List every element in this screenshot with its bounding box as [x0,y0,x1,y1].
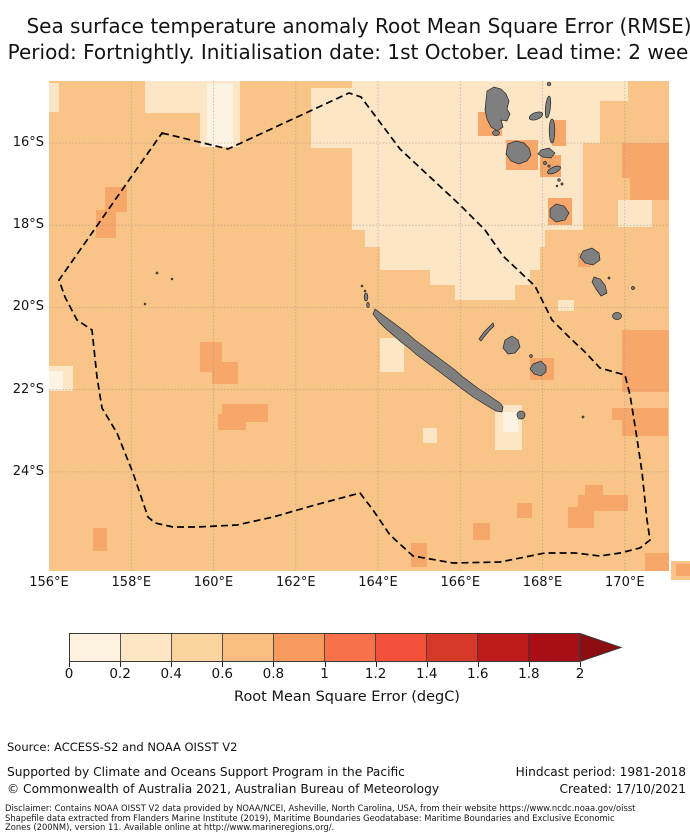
copyright-text: © Commonwealth of Australia 2021, Austra… [7,782,439,796]
disclaimer-line-1: Disclaimer: Contains NOAA OISST V2 data … [5,803,635,813]
x-tick-label: 158°E [101,575,161,590]
y-tick-label: 22°S [0,382,44,398]
disclaimer-line-3: Zones (200NM), version 11. Available onl… [5,822,334,832]
island-tiga [530,355,533,358]
colorbar-cell [478,634,529,661]
island-pentecost [549,119,555,143]
islands-chesterfield [156,272,158,274]
colorbar [69,633,580,662]
y-tick-label: 20°S [0,299,44,315]
island-aneityum [613,313,622,320]
island-belep [364,293,368,301]
island-malo [493,131,500,136]
colorbar-tick-label: 0.6 [200,666,244,682]
colorbar-tick-label: 0.4 [149,666,193,682]
created-date-text: Created: 17/10/2021 [560,782,686,796]
colorbar-extend-arrow [580,632,624,663]
disclaimer-line-2: Shapefile data extracted from Flanders M… [5,813,615,823]
colorbar-cell [376,634,427,661]
x-tick-label: 156°E [19,575,79,590]
y-tick-label: 16°S [0,135,44,151]
colorbar-tick-label: 1.4 [405,666,449,682]
island-walpole [582,416,584,418]
x-tick-label: 164°E [348,575,408,590]
y-tick-label: 18°S [0,217,44,233]
x-tick-label: 170°E [595,575,655,590]
colorbar-tick-label: 2 [558,666,602,682]
colorbar-label: Root Mean Square Error (degC) [147,689,547,705]
hindcast-period-text: Hindcast period: 1981-2018 [516,765,686,779]
colorbar-cell [223,634,274,661]
map-plot [49,81,669,571]
x-tick-label: 160°E [184,575,244,590]
colorbar-cell [274,634,325,661]
y-tick-label: 24°S [0,464,44,480]
island-ile-des-pins [517,411,525,419]
colorbar-tick-label: 0 [47,666,91,682]
supported-text: Supported by Climate and Oceans Support … [7,765,405,779]
colorbar-tick-label: 1.8 [507,666,551,682]
x-tick-label: 162°E [266,575,326,590]
colorbar-cell [172,634,223,661]
colorbar-cell [325,634,376,661]
source-text: Source: ACCESS-S2 and NOAA OISST V2 [7,740,237,754]
colorbar-tick-label: 1.6 [456,666,500,682]
colorbar-cell [121,634,172,661]
title-line-2: Period: Fortnightly. Initialisation date… [8,39,690,65]
colorbar-cell [70,634,121,661]
x-tick-label: 168°E [513,575,573,590]
x-tick-label: 166°E [430,575,490,590]
figure-title: Sea surface temperature anomaly Root Mea… [8,13,690,65]
map-edge-patch [671,561,690,580]
colorbar-cell [427,634,478,661]
colorbar-tick-label: 0.8 [251,666,295,682]
title-line-1: Sea surface temperature anomaly Root Mea… [8,13,690,39]
colorbar-tick-label: 1 [303,666,347,682]
colorbar-tick-label: 0.2 [98,666,142,682]
colorbar-cell [529,634,579,661]
colorbar-tick-label: 1.2 [354,666,398,682]
